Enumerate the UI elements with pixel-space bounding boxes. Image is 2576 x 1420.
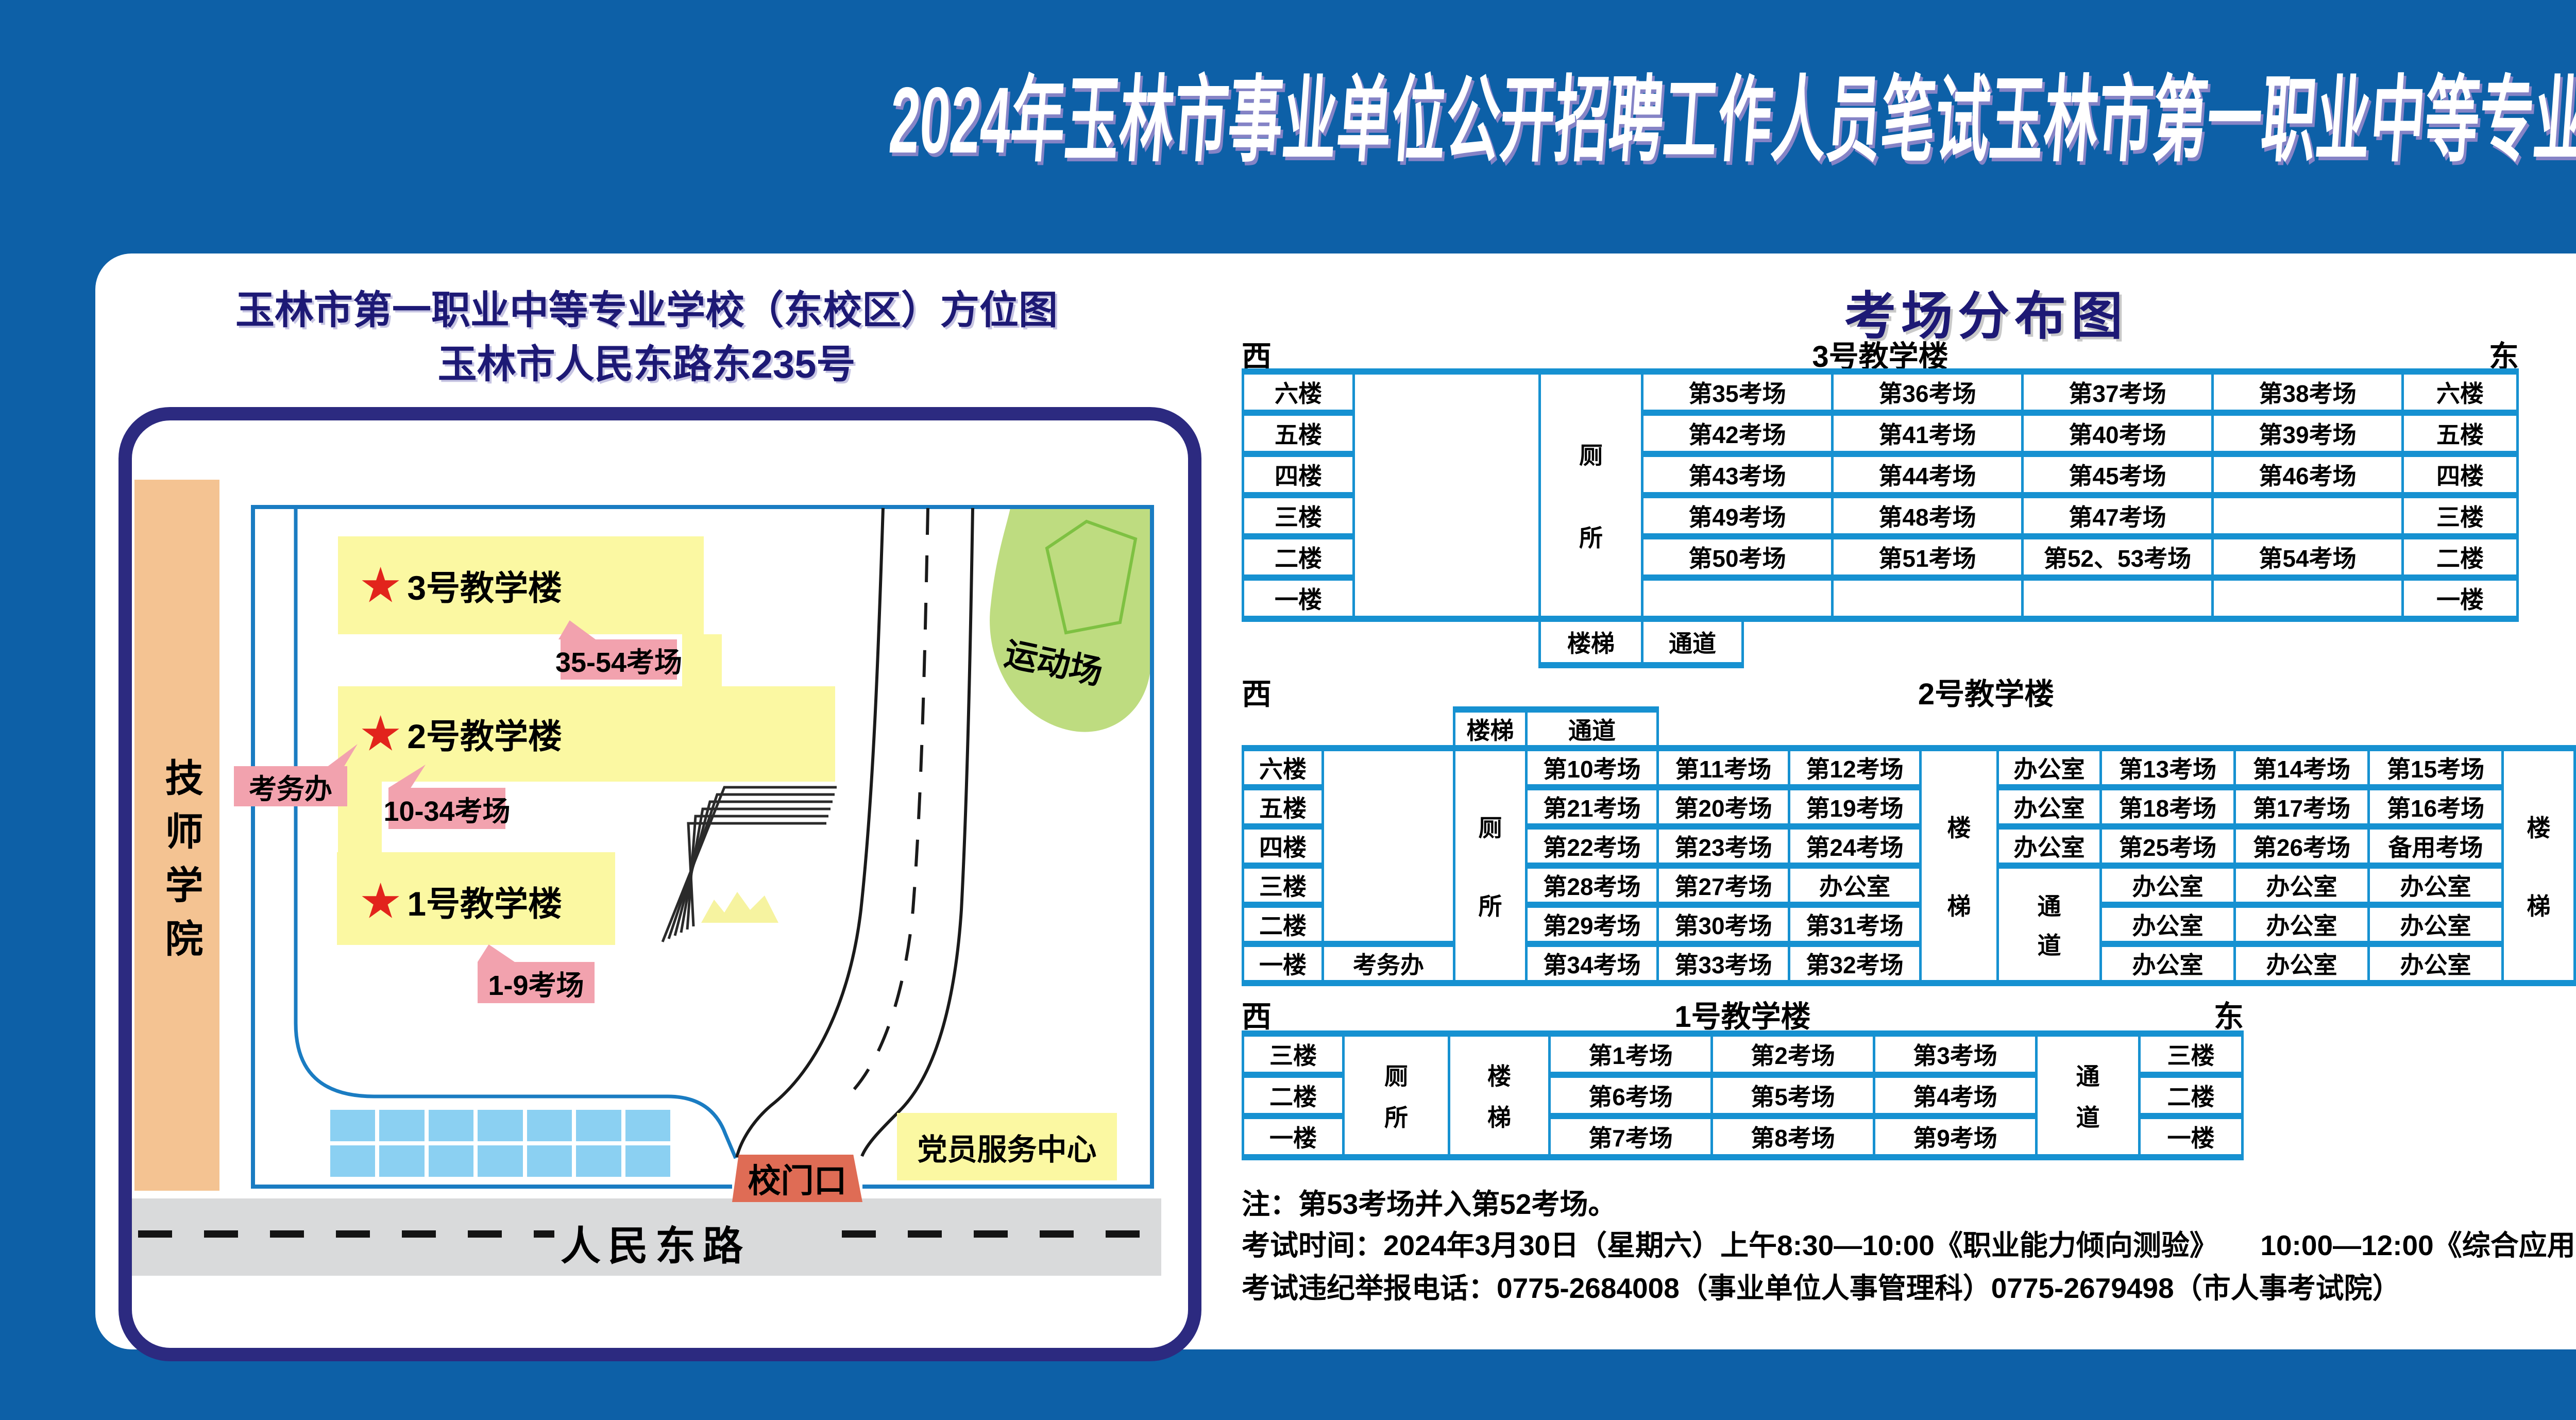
room-cell: 第30考场 <box>1659 908 1788 941</box>
room-cell: 厕所 <box>1541 375 1641 616</box>
room-cell: 第6考场 <box>1551 1078 1710 1113</box>
building3-name: 3号教学楼 <box>407 561 562 610</box>
room-cell: 考务办 <box>1324 947 1453 980</box>
room-cell: 第28考场 <box>1528 869 1656 902</box>
party-service-center: 党员服务中心 <box>897 1113 1117 1180</box>
room-cell: 第32考场 <box>1790 947 1919 980</box>
building2-header-name: 2号教学楼 <box>1918 670 2054 713</box>
room-cell: 楼梯 <box>2504 751 2573 980</box>
room-cell: 第9考场 <box>1875 1119 2035 1154</box>
road-left-line <box>737 508 883 1157</box>
passage-cell: 通道 <box>1528 713 1656 745</box>
room-cell: 第14考场 <box>2236 751 2367 784</box>
parking-space <box>429 1110 473 1141</box>
room-cell: 三楼 <box>1244 1037 1342 1072</box>
room-cell: 一楼 <box>1244 947 1321 980</box>
room-cell: 二楼 <box>2141 1078 2241 1113</box>
room-cell: 六楼 <box>1244 375 1352 410</box>
room-cell: 第17考场 <box>2236 790 2367 823</box>
room-cell: 第22考场 <box>1528 830 1656 863</box>
room-cell: 第4考场 <box>1875 1078 2035 1113</box>
parking-space <box>576 1145 621 1177</box>
room-cell: 办公室 <box>2236 869 2367 902</box>
parking-space <box>478 1110 522 1141</box>
room-cell: 第16考场 <box>2370 790 2501 823</box>
room-cell: 厕所 <box>1345 1037 1448 1154</box>
room-cell: 二楼 <box>1244 1078 1342 1113</box>
room-cell: 第39考场 <box>2214 416 2401 451</box>
room-cell: 第25考场 <box>2102 830 2233 863</box>
room-cell: 通道 <box>1999 869 2099 980</box>
building3-table: 六楼五楼四楼三楼二楼一楼厕所第35考场第36考场第37考场第38考场第42考场第… <box>1242 368 2519 622</box>
building1-header: 西 1号教学楼 东 <box>1242 992 2244 1036</box>
room-cell: 第36考场 <box>1834 375 2021 410</box>
west-label: 西 <box>1242 670 1272 713</box>
stairs-cell: 楼梯 <box>1455 713 1525 745</box>
room-cell: 办公室 <box>2236 908 2367 941</box>
room-cell: 第42考场 <box>1643 416 1831 451</box>
room-cell: 楼梯 <box>1450 1037 1548 1154</box>
room-cell: 办公室 <box>1999 790 2099 823</box>
note-exam-time: 考试时间：2024年3月30日（星期六）上午8:30—10:00《职业能力倾向测… <box>1242 1222 2576 1263</box>
room-cell: 第19考场 <box>1790 790 1919 823</box>
school-gate: 校门口 <box>732 1155 862 1202</box>
room-cell: 第23考场 <box>1659 830 1788 863</box>
stairs-cell: 楼梯 <box>1541 622 1641 662</box>
room-cell: 第38考场 <box>2214 375 2401 410</box>
parking-space <box>576 1110 621 1141</box>
room-cell: 第26考场 <box>2236 830 2367 863</box>
note-hotline: 考试违纪举报电话：0775-2684008（事业单位人事管理科）0775-267… <box>1242 1265 2401 1306</box>
room-cell: 第35考场 <box>1643 375 1831 410</box>
room-cell: 办公室 <box>2102 869 2233 902</box>
room-cell: 一楼 <box>2404 581 2516 616</box>
room-cell: 备用考场 <box>2370 830 2501 863</box>
room-cell: 第43考场 <box>1643 457 1831 492</box>
empty-cell <box>1834 581 2021 616</box>
parking-space <box>625 1145 670 1177</box>
map-title-line1: 玉林市第一职业中等专业学校（东校区）方位图 <box>118 278 1175 335</box>
exam-office-callout: 考务办 <box>234 766 347 806</box>
room-cell: 办公室 <box>2370 947 2501 980</box>
room-cell: 二楼 <box>2404 539 2516 574</box>
building3-stairs-passage: 楼梯 通道 <box>1538 622 1744 668</box>
parking-space <box>330 1110 375 1141</box>
building2-header: 西 2号教学楼 东 <box>1242 670 2576 713</box>
main-title: 2024年玉林市事业单位公开招聘工作人员笔试玉林市第一职业中等专业学校（东校区）… <box>0 44 2576 180</box>
room-cell: 四楼 <box>2404 457 2516 492</box>
room-cell: 通道 <box>2038 1037 2138 1154</box>
room-cell: 办公室 <box>2102 908 2233 941</box>
room-cell: 六楼 <box>2404 375 2516 410</box>
room-cell: 四楼 <box>1244 830 1321 863</box>
room-cell: 办公室 <box>2102 947 2233 980</box>
empty-cell <box>2214 581 2401 616</box>
room-cell: 第12考场 <box>1790 751 1919 784</box>
room-cell: 第49考场 <box>1643 498 1831 533</box>
rooms-1-9-callout: 1-9考场 <box>478 962 595 1003</box>
parking-space <box>478 1145 522 1177</box>
room-cell: 第10考场 <box>1528 751 1656 784</box>
rooms-35-54-callout: 35-54考场 <box>561 639 677 680</box>
room-cell: 第51考场 <box>1834 539 2021 574</box>
parking-space <box>429 1145 473 1177</box>
room-cell: 五楼 <box>1244 416 1352 451</box>
empty-cell <box>1324 751 1453 941</box>
building3-label: ★ 3号教学楼 <box>361 561 562 610</box>
star-icon: ★ <box>361 712 400 755</box>
room-cell: 第11考场 <box>1659 751 1788 784</box>
main-title-text: 2024年玉林市事业单位公开招聘工作人员笔试玉林市第一职业中等专业学校（东校区）… <box>886 44 2576 180</box>
room-cell: 第24考场 <box>1790 830 1919 863</box>
room-cell: 五楼 <box>1244 790 1321 823</box>
building2-stairs-passage: 楼梯 通道 <box>1453 706 1659 745</box>
room-cell: 第18考场 <box>2102 790 2233 823</box>
passage-cell: 通道 <box>1643 622 1741 662</box>
room-cell: 第27考场 <box>1659 869 1788 902</box>
room-cell: 第33考场 <box>1659 947 1788 980</box>
room-cell: 三楼 <box>1244 869 1321 902</box>
room-cell: 办公室 <box>1999 830 2099 863</box>
room-cell: 第54考场 <box>2214 539 2401 574</box>
room-cell: 第2考场 <box>1713 1037 1873 1072</box>
parking-space <box>527 1110 572 1141</box>
room-cell: 第7考场 <box>1551 1119 1710 1154</box>
room-cell: 楼梯 <box>1922 751 1996 980</box>
room-cell: 第3考场 <box>1875 1037 2035 1072</box>
room-cell: 第34考场 <box>1528 947 1656 980</box>
star-icon: ★ <box>361 880 400 923</box>
parking-lot <box>330 1110 670 1177</box>
room-cell: 六楼 <box>1244 751 1321 784</box>
empty-cell <box>2024 581 2211 616</box>
room-cell: 第5考场 <box>1713 1078 1873 1113</box>
building2-table: 六楼五楼四楼三楼二楼一楼考务办厕所第10考场第11考场第12考场第21考场第20… <box>1242 745 2576 986</box>
star-icon: ★ <box>361 564 400 607</box>
room-cell: 第47考场 <box>2024 498 2211 533</box>
room-cell: 第15考场 <box>2370 751 2501 784</box>
room-cell: 办公室 <box>1999 751 2099 784</box>
room-cell: 第20考场 <box>1659 790 1788 823</box>
sports-field-shape <box>990 508 1151 732</box>
room-cell: 第29考场 <box>1528 908 1656 941</box>
room-cell: 第40考场 <box>2024 416 2211 451</box>
note-merge: 注：第53考场并入第52考场。 <box>1242 1181 1616 1222</box>
parking-space <box>625 1110 670 1141</box>
room-cell: 第45考场 <box>2024 457 2211 492</box>
map-title-line2: 玉林市人民东路东235号 <box>118 332 1175 389</box>
building1-table: 三楼二楼一楼厕所楼梯第1考场第2考场第3考场第6考场第5考场第4考场第7考场第8… <box>1242 1030 2244 1160</box>
poster-canvas: 2024年玉林市事业单位公开招聘工作人员笔试玉林市第一职业中等专业学校（东校区）… <box>0 0 2576 1420</box>
room-cell: 办公室 <box>2370 908 2501 941</box>
room-cell: 第41考场 <box>1834 416 2021 451</box>
campus-map: 技师学院 人民东路 <box>118 407 1201 1361</box>
room-cell: 三楼 <box>1244 498 1352 533</box>
parking-space <box>527 1145 572 1177</box>
room-cell: 三楼 <box>2141 1037 2241 1072</box>
building1-header-name: 1号教学楼 <box>1674 992 1810 1036</box>
road-center-dashes <box>854 508 928 1089</box>
room-cell: 办公室 <box>2370 869 2501 902</box>
room-cell: 办公室 <box>1790 869 1919 902</box>
room-cell: 一楼 <box>1244 581 1352 616</box>
building2-name: 2号教学楼 <box>407 709 562 758</box>
room-cell: 第50考场 <box>1643 539 1831 574</box>
building1-label: ★ 1号教学楼 <box>361 876 562 926</box>
room-cell: 第8考场 <box>1713 1119 1873 1154</box>
empty-cell <box>1355 375 1538 616</box>
room-cell: 厕所 <box>1455 751 1525 980</box>
parking-space <box>379 1145 424 1177</box>
room-cell: 第1考场 <box>1551 1037 1710 1072</box>
room-cell: 一楼 <box>2141 1119 2241 1154</box>
empty-cell <box>2214 498 2401 533</box>
empty-cell <box>1643 581 1831 616</box>
parking-space <box>379 1110 424 1141</box>
room-cell: 第46考场 <box>2214 457 2401 492</box>
room-cell: 一楼 <box>1244 1119 1342 1154</box>
room-cell: 办公室 <box>2236 947 2367 980</box>
room-cell: 三楼 <box>2404 498 2516 533</box>
room-cell: 第31考场 <box>1790 908 1919 941</box>
room-cell: 第13考场 <box>2102 751 2233 784</box>
room-cell: 第37考场 <box>2024 375 2211 410</box>
room-cell: 第21考场 <box>1528 790 1656 823</box>
building2-label: ★ 2号教学楼 <box>361 709 562 758</box>
room-cell: 二楼 <box>1244 539 1352 574</box>
rooms-10-34-callout: 10-34考场 <box>388 788 505 829</box>
east-label: 东 <box>2214 992 2244 1036</box>
room-cell: 第44考场 <box>1834 457 2021 492</box>
room-cell: 四楼 <box>1244 457 1352 492</box>
room-cell: 五楼 <box>2404 416 2516 451</box>
building3-wing <box>682 634 722 686</box>
room-cell: 二楼 <box>1244 908 1321 941</box>
west-label: 西 <box>1242 992 1272 1036</box>
room-cell: 第48考场 <box>1834 498 2021 533</box>
decorative-zigzag <box>701 892 778 923</box>
parking-space <box>330 1145 375 1177</box>
room-cell: 第52、53考场 <box>2024 539 2211 574</box>
building1-name: 1号教学楼 <box>407 876 562 926</box>
